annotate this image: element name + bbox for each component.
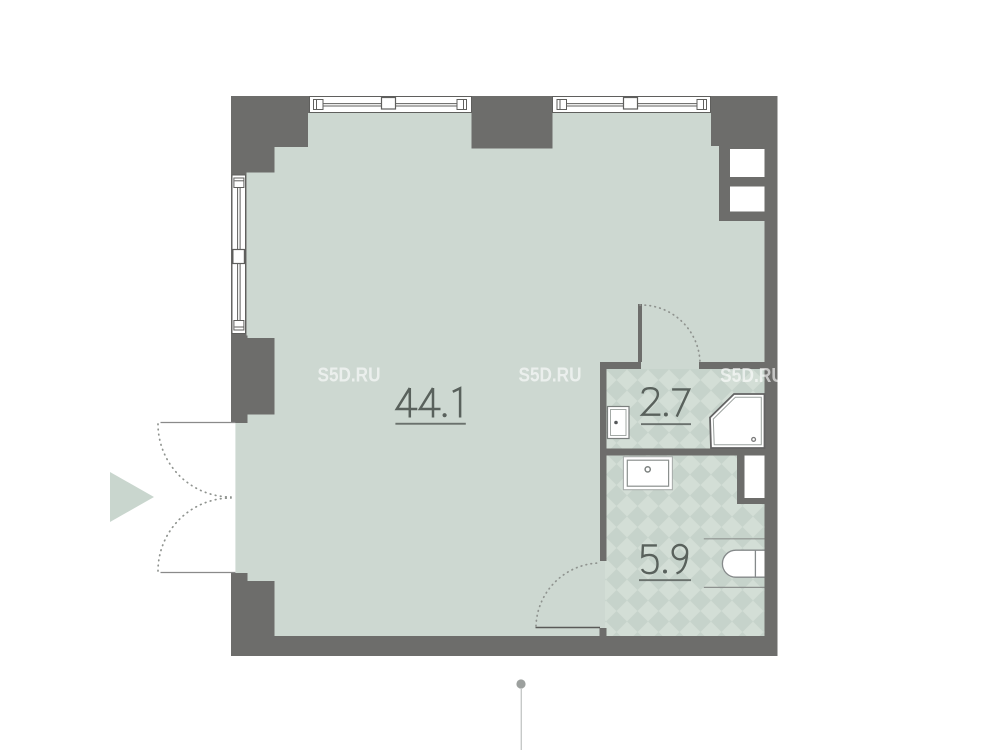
svg-text:S5D.RU: S5D.RU — [720, 365, 784, 387]
svg-text:S5D.RU: S5D.RU — [519, 364, 582, 386]
svg-text:S5D.RU: S5D.RU — [318, 364, 381, 386]
